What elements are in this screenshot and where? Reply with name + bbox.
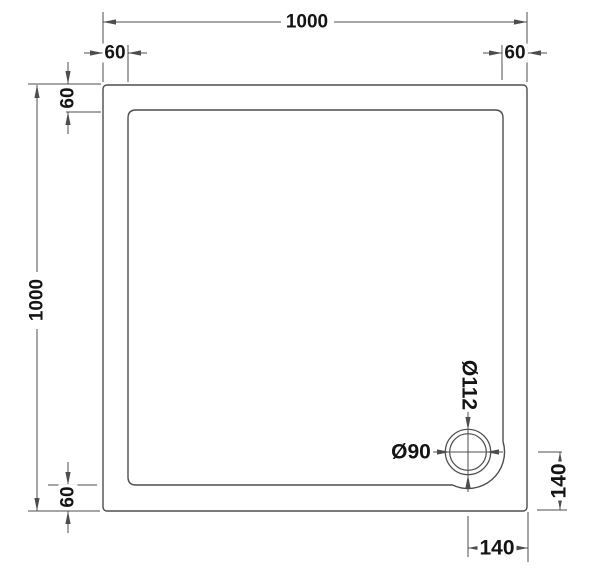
tray-inner-outline xyxy=(128,110,505,488)
shower-tray-technical-drawing: 1000 60 60 1000 60 60 Ø112 Ø90 140 140 xyxy=(0,0,600,584)
dim-label-waste-offset-bottom: 140 xyxy=(477,538,516,559)
dim-label-overall-width: 1000 xyxy=(284,13,330,32)
dim-label-flange-left-top: 60 xyxy=(59,85,78,110)
dim-label-waste-offset-right: 140 xyxy=(549,461,570,500)
tray-outer-outline xyxy=(103,85,527,511)
dim-label-flange-top-left: 60 xyxy=(102,44,127,63)
dim-label-overall-depth: 1000 xyxy=(28,277,47,323)
dim-label-waste-inner-diameter: Ø90 xyxy=(389,442,433,463)
dim-label-waste-outer-diameter: Ø112 xyxy=(459,358,480,412)
dim-label-flange-left-bottom: 60 xyxy=(59,484,78,509)
dim-label-flange-top-right: 60 xyxy=(502,44,527,63)
drawing-canvas xyxy=(0,0,600,584)
